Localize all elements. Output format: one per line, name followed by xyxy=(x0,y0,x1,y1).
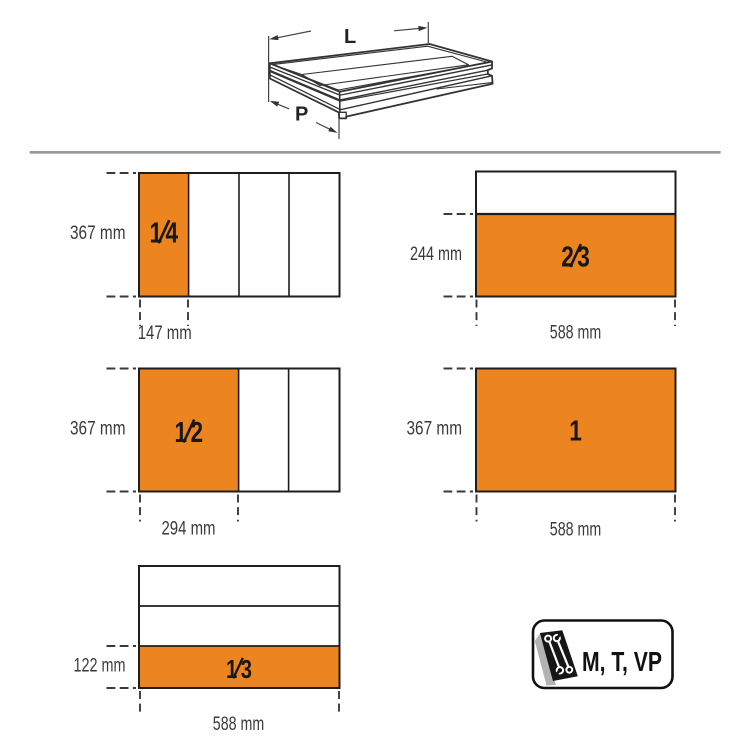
svg-text:1: 1 xyxy=(150,216,163,249)
svg-text:M, T, VP: M, T, VP xyxy=(582,646,662,677)
svg-text:P: P xyxy=(295,103,308,125)
svg-text:588 mm: 588 mm xyxy=(213,713,264,735)
svg-text:588 mm: 588 mm xyxy=(550,322,601,344)
svg-text:367 mm: 367 mm xyxy=(70,418,126,440)
svg-text:588 mm: 588 mm xyxy=(550,519,601,541)
svg-text:367 mm: 367 mm xyxy=(407,418,463,440)
svg-text:244 mm: 244 mm xyxy=(410,243,462,265)
svg-text:1: 1 xyxy=(175,415,188,448)
svg-text:2: 2 xyxy=(191,415,204,448)
svg-text:L: L xyxy=(344,26,356,48)
svg-text:147 mm: 147 mm xyxy=(138,322,192,344)
svg-text:122 mm: 122 mm xyxy=(74,655,126,677)
svg-text:367 mm: 367 mm xyxy=(70,222,126,244)
svg-text:1: 1 xyxy=(569,414,582,447)
svg-text:3: 3 xyxy=(577,240,590,273)
svg-text:1: 1 xyxy=(226,655,237,684)
svg-text:294 mm: 294 mm xyxy=(162,518,216,540)
svg-text:2: 2 xyxy=(561,240,574,273)
